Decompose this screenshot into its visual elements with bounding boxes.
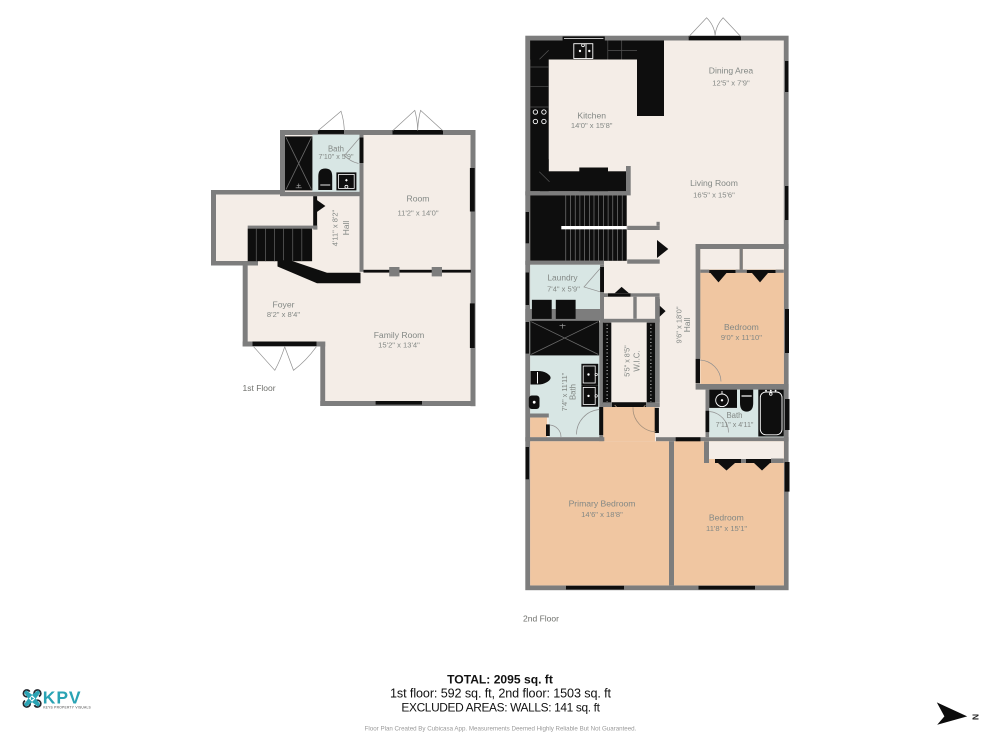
svg-text:9'6" x 18'0": 9'6" x 18'0": [675, 306, 684, 343]
svg-text:11'8" x 15'1": 11'8" x 15'1": [706, 524, 747, 533]
svg-text:Bedroom: Bedroom: [709, 512, 744, 522]
svg-text:1st floor: 592 sq. ft, 2nd flo: 1st floor: 592 sq. ft, 2nd floor: 1503 s…: [390, 687, 612, 701]
svg-text:5'5" x 8'5": 5'5" x 8'5": [623, 345, 632, 377]
svg-text:12'5" x 7'9": 12'5" x 7'9": [712, 78, 750, 87]
svg-text:8'2" x 8'4": 8'2" x 8'4": [267, 310, 301, 319]
svg-text:7'11" x 4'11": 7'11" x 4'11": [716, 421, 754, 429]
svg-text:N: N: [970, 714, 980, 720]
svg-text:Hall: Hall: [341, 221, 351, 236]
svg-text:4'11" x 8'2": 4'11" x 8'2": [331, 209, 340, 246]
svg-text:Bedroom: Bedroom: [724, 322, 759, 332]
svg-text:Primary Bedroom: Primary Bedroom: [569, 498, 636, 508]
svg-text:Bath: Bath: [569, 384, 578, 400]
svg-text:16'5" x 15'6": 16'5" x 15'6": [693, 191, 735, 200]
svg-text:2nd Floor: 2nd Floor: [523, 614, 559, 624]
svg-text:Floor Plan Created By Cubicasa: Floor Plan Created By Cubicasa App. Meas…: [365, 726, 637, 733]
svg-text:Dining Area: Dining Area: [709, 66, 754, 76]
svg-text:14'6" x 18'8": 14'6" x 18'8": [581, 510, 623, 519]
svg-text:14'0" x 15'8": 14'0" x 15'8": [571, 121, 613, 130]
svg-text:Hall: Hall: [682, 318, 692, 333]
svg-text:KEYS PROPERTY VISUALS: KEYS PROPERTY VISUALS: [43, 706, 91, 710]
svg-text:Kitchen: Kitchen: [577, 110, 606, 120]
svg-text:W.I.C.: W.I.C.: [633, 350, 642, 371]
svg-text:KPV: KPV: [43, 687, 82, 707]
svg-text:Room: Room: [407, 194, 430, 204]
svg-text:Foyer: Foyer: [273, 300, 295, 310]
svg-text:9'0" x 11'10": 9'0" x 11'10": [721, 333, 762, 342]
svg-text:Family Room: Family Room: [374, 330, 425, 340]
svg-text:11'2" x 14'0": 11'2" x 14'0": [397, 208, 438, 217]
svg-text:7'10" x 5'9": 7'10" x 5'9": [319, 153, 354, 161]
svg-text:Bath: Bath: [328, 144, 344, 153]
svg-text:Bath: Bath: [726, 411, 742, 420]
svg-text:Laundry: Laundry: [547, 273, 578, 283]
svg-text:7'4" x 11'11": 7'4" x 11'11": [560, 372, 569, 411]
svg-text:TOTAL: 2095 sq. ft: TOTAL: 2095 sq. ft: [447, 673, 553, 687]
svg-text:1st Floor: 1st Floor: [243, 383, 276, 393]
svg-text:15'2" x 13'4": 15'2" x 13'4": [378, 341, 420, 350]
svg-text:EXCLUDED AREAS: WALLS: 141 sq.: EXCLUDED AREAS: WALLS: 141 sq. ft: [401, 701, 600, 715]
svg-text:Living Room: Living Room: [690, 178, 738, 188]
svg-text:7'4" x 5'9": 7'4" x 5'9": [547, 284, 580, 293]
